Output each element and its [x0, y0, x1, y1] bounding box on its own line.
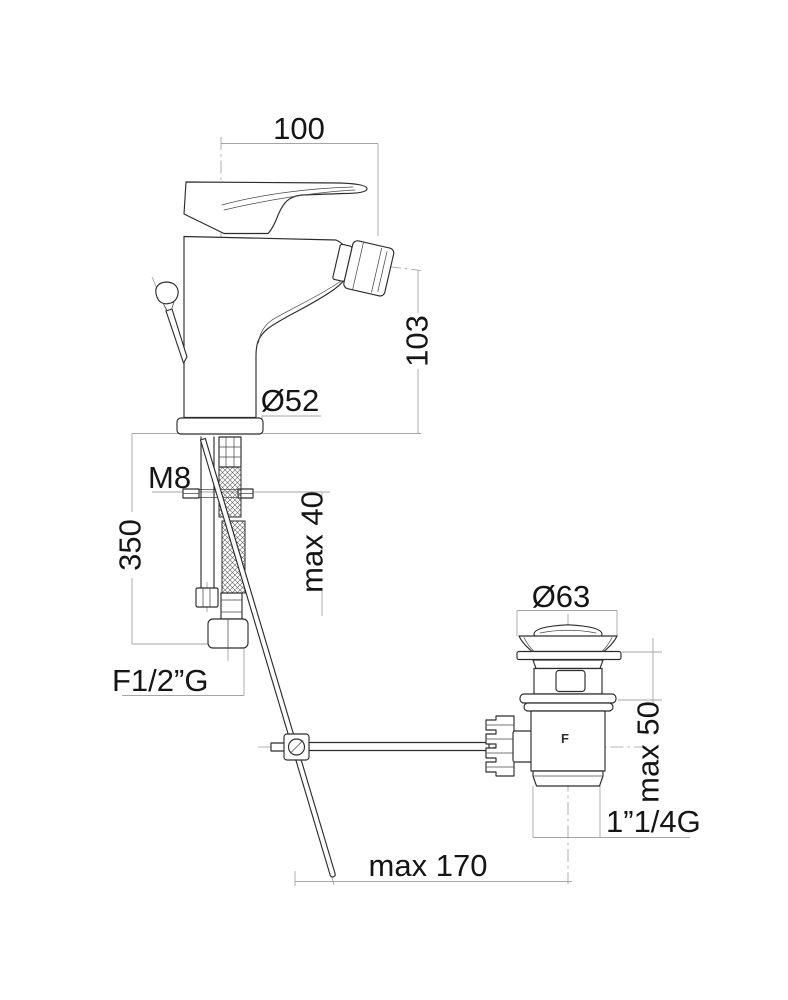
waste-body-mark: F: [561, 731, 569, 746]
waste-neck: [533, 660, 603, 669]
waste-flange-plate: [517, 652, 621, 660]
drawing-canvas: F 100 103 Ø52 M8 350 max 40 F1/2”G Ø63 m…: [0, 0, 788, 1000]
technical-drawing: F 100 103 Ø52 M8 350 max 40 F1/2”G Ø63 m…: [0, 0, 788, 1000]
popup-linkage: [271, 734, 489, 760]
waste-flange: [519, 636, 617, 652]
waste-locknut-1: [520, 694, 616, 703]
waste-window: [556, 671, 585, 692]
dim-spout-reach-label: 100: [273, 111, 325, 146]
waste-locknut-2: [524, 703, 613, 711]
horizontal-rod: [309, 743, 489, 751]
base-flange: [177, 418, 263, 434]
popup-waste-group: F: [486, 625, 621, 786]
dim-hose-thread-label: F1/2”G: [112, 663, 208, 698]
dim-deck-max-label: max 40: [295, 491, 330, 593]
rod-stub: [271, 743, 285, 751]
popup-knob: [156, 282, 187, 363]
dim-waste-thread-label: 1”1/4G: [606, 804, 701, 839]
dim-spout-height-label: 103: [400, 315, 435, 367]
dimension-labels: 100 103 Ø52 M8 350 max 40 F1/2”G Ø63 max…: [112, 111, 701, 883]
dim-waste-diameter-label: Ø63: [532, 579, 591, 614]
dim-hose-length-label: 350: [113, 519, 148, 571]
aerator: [331, 237, 395, 297]
dim-stud-thread-label: M8: [148, 460, 191, 495]
dim-body-diameter-label: Ø52: [261, 383, 320, 418]
handle-lever: [184, 182, 367, 234]
dim-rod-projection-label: max 170: [369, 848, 488, 883]
waste-thread-end: [533, 771, 603, 786]
dim-waste-deck-max-label: max 50: [631, 701, 666, 803]
faucet-body-group: [156, 182, 395, 877]
